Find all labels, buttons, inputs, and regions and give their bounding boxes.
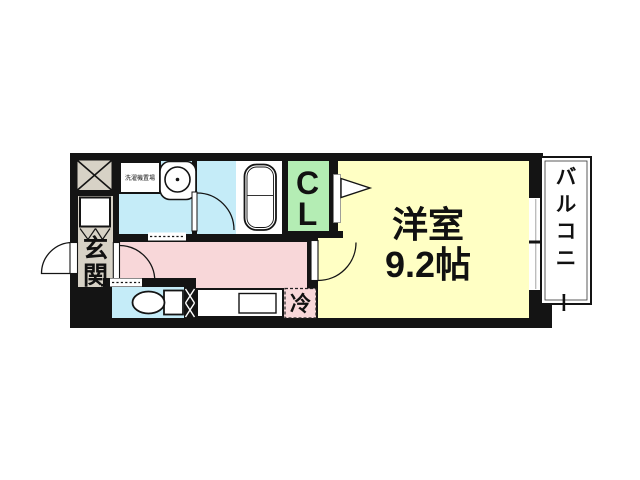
entrance-door-swing bbox=[41, 243, 72, 274]
kitchen-sink bbox=[239, 294, 276, 314]
bathtub bbox=[245, 165, 277, 231]
wash-basin-drain bbox=[176, 178, 180, 182]
room-bath-entry bbox=[197, 161, 236, 234]
wall-corner-stub bbox=[543, 303, 552, 328]
wall-under-closet bbox=[283, 231, 343, 238]
refrigerator-label: 冷 bbox=[290, 292, 311, 316]
washing-machine-label: 洗濯機置場 bbox=[125, 174, 155, 182]
bath-door-leaf bbox=[192, 192, 197, 231]
room-main-size: 9.2帖 bbox=[385, 244, 471, 285]
room-kitchen-upper bbox=[119, 242, 307, 280]
washroom-accordion-door bbox=[148, 233, 186, 241]
floor-plan-page: 洗濯機置場 C L 冷 バルコニー 玄関 洋室 9.2帖 bbox=[0, 0, 640, 480]
floor-plan: 洗濯機置場 C L 冷 バルコニー 玄関 洋室 9.2帖 bbox=[0, 0, 640, 480]
entrance-label: 玄関 bbox=[83, 234, 108, 290]
room-main-strip bbox=[318, 238, 338, 318]
closet-door-panel bbox=[334, 175, 341, 223]
main-room-door-leaf bbox=[311, 241, 318, 281]
room-main-label: 洋室 bbox=[392, 204, 464, 245]
hall-door-leaf bbox=[113, 243, 119, 283]
toilet-bowl bbox=[133, 292, 165, 314]
toilet-tank bbox=[164, 291, 183, 315]
entrance-door-leaf bbox=[70, 243, 78, 274]
closet-label-l: L bbox=[298, 196, 318, 232]
shoe-cabinet bbox=[80, 198, 110, 227]
